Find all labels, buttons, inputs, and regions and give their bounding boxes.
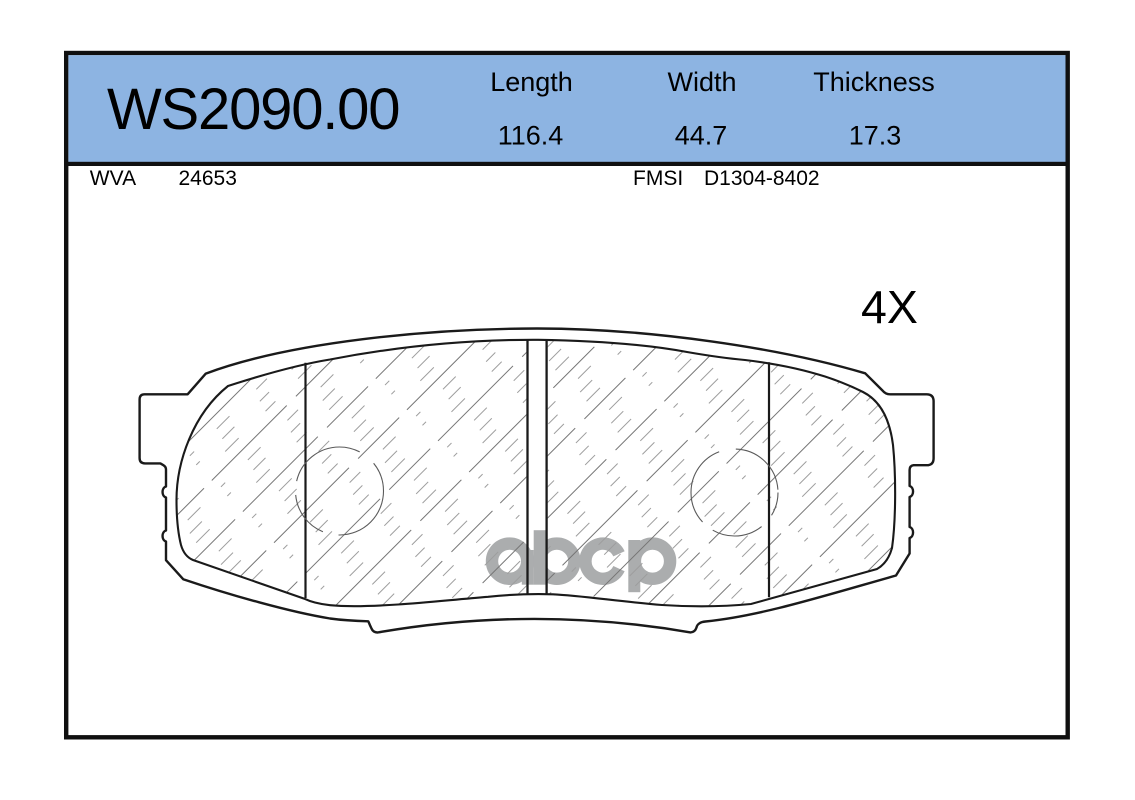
svg-text:Thickness: Thickness xyxy=(813,67,935,97)
svg-text:FMSI: FMSI xyxy=(633,167,683,190)
svg-text:Length: Length xyxy=(490,67,573,97)
svg-text:D1304-8402: D1304-8402 xyxy=(704,167,820,190)
svg-text:WVA: WVA xyxy=(90,167,136,190)
svg-text:4X: 4X xyxy=(861,281,918,333)
svg-text:116.4: 116.4 xyxy=(498,121,564,151)
svg-text:17.3: 17.3 xyxy=(849,121,902,151)
svg-text:WS2090.00: WS2090.00 xyxy=(107,77,399,142)
svg-text:24653: 24653 xyxy=(179,167,237,190)
svg-text:Width: Width xyxy=(667,67,736,97)
svg-text:44.7: 44.7 xyxy=(675,121,728,151)
